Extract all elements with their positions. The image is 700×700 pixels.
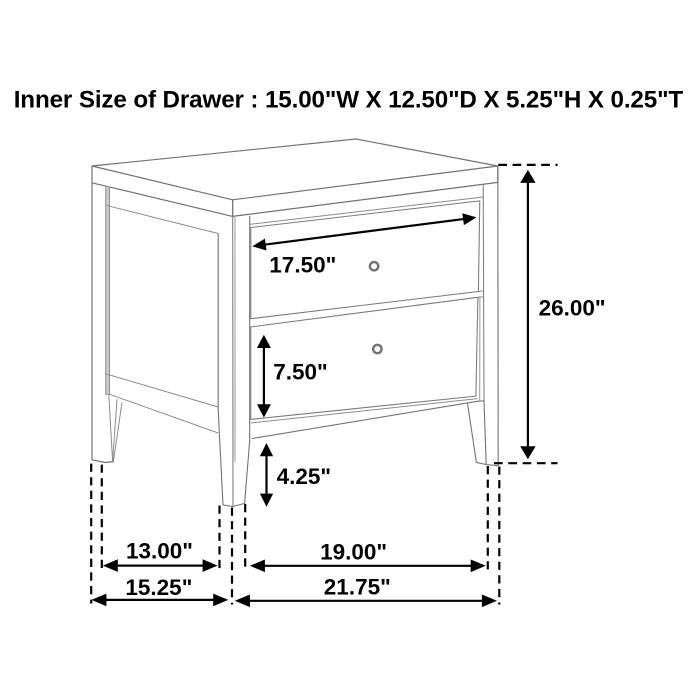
svg-text:Inner Size of Drawer : 15.00"W: Inner Size of Drawer : 15.00"W X 12.50"D…: [14, 86, 684, 113]
svg-text:26.00": 26.00": [539, 295, 606, 320]
svg-text:21.75": 21.75": [324, 574, 391, 599]
svg-text:15.25": 15.25": [125, 575, 192, 600]
svg-text:17.50": 17.50": [269, 253, 336, 278]
svg-text:7.50": 7.50": [273, 359, 327, 384]
svg-text:4.25": 4.25": [277, 464, 331, 489]
svg-text:13.00": 13.00": [126, 538, 193, 563]
svg-text:19.00": 19.00": [320, 539, 387, 564]
